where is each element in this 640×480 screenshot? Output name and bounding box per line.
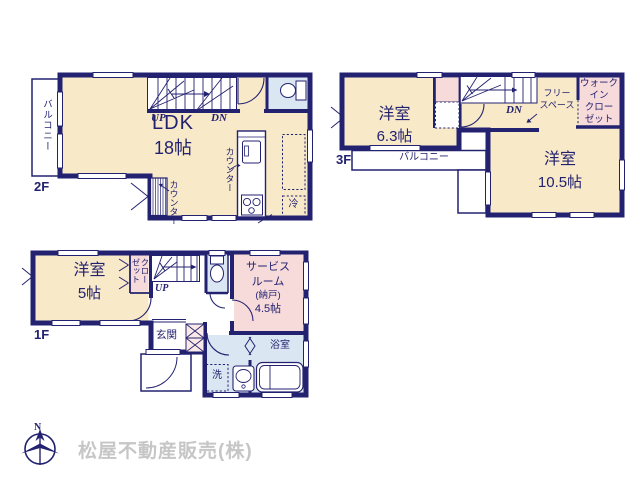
floor3-label: 3F (336, 153, 351, 167)
entrance-label: 玄関 (156, 330, 177, 341)
room1-3f-size-label: 6.3帖 (357, 129, 432, 145)
balcony-3f-wrap (458, 170, 486, 213)
toilet-icon-1f (211, 256, 224, 282)
room-1f-size-label: 5帖 (52, 286, 127, 302)
floor1-label: 1F (34, 328, 49, 342)
dn-label-3f: DN (506, 105, 522, 117)
wic-label-4: ゼット (578, 115, 620, 125)
wic-label-3: クロー (578, 103, 620, 113)
room-1f-label: 洋室 (52, 263, 127, 280)
compass-icon (21, 429, 59, 465)
room2-3f-label: 洋室 (518, 152, 602, 169)
service-room-label-2: ルーム (234, 277, 302, 289)
closet-label-2: ゼット (131, 258, 140, 284)
dn-label-2f: DN (211, 113, 227, 125)
compass-north-label: N (34, 423, 41, 434)
laundry-label: 洗 (207, 371, 227, 382)
up-label-1f: UP (155, 284, 168, 295)
floorplan-page: バルコニー LDK 18帖 UP DN カウンター カウンター 冷 2F 洋室 … (0, 0, 640, 480)
service-room-label-4: 4.5帖 (234, 304, 302, 316)
room1-3f-label: 洋室 (357, 107, 432, 124)
balcony-3f-label: バルコニー (388, 153, 460, 164)
counter-kitchen-label: カウンター (224, 147, 233, 192)
room2-3f-size-label: 10.5帖 (516, 175, 604, 191)
floor2-label: 2F (34, 180, 49, 194)
shoe-cabinet-icon (186, 324, 204, 352)
balcony-2f-label: バルコニー (41, 99, 51, 152)
stairs-3f (459, 77, 537, 104)
closet-open-3f (436, 102, 460, 128)
kitchen-counter-icon (238, 131, 266, 217)
free-space-label-2: スペース (532, 101, 582, 110)
service-room-label-3: (納戸) (234, 291, 302, 301)
closet-3f (436, 77, 460, 102)
bathroom-label: 浴室 (261, 341, 299, 352)
ldk-size-label: 18帖 (128, 139, 218, 158)
closet-label-1: クロー (140, 258, 149, 284)
stairs-1f (152, 256, 200, 282)
porch (141, 350, 191, 392)
bathtub-icon (257, 363, 304, 393)
up-label-2f: UP (151, 113, 166, 125)
service-room-label-1: サービス (234, 262, 302, 274)
counter-wall-label: カウンター (168, 180, 177, 225)
stairs-2f (148, 78, 237, 112)
floorplan-graphics (0, 0, 640, 480)
wall-counter-icon (151, 178, 168, 216)
wic-label-2: イン (578, 91, 620, 101)
free-space-label-1: フリー (534, 89, 580, 98)
washbasin-icon (233, 366, 254, 391)
ldk-label: LDK (128, 113, 218, 134)
fridge-label: 冷 (283, 200, 304, 211)
wic-label-1: ウォーク (578, 79, 620, 89)
company-name: 松屋不動産販売(株) (78, 442, 253, 462)
